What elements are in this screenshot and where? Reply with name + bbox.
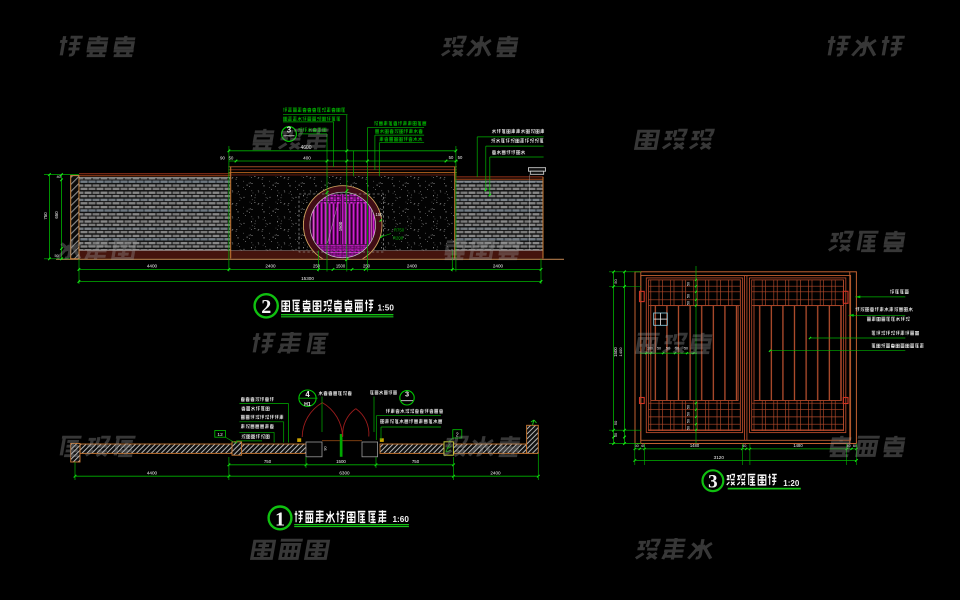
svg-text:1:50: 1:50 [378, 304, 395, 313]
svg-text:1: 1 [275, 508, 285, 530]
svg-text:R200: R200 [393, 236, 404, 241]
svg-text:50: 50 [687, 294, 691, 298]
svg-text:H1: H1 [304, 402, 311, 408]
svg-text:2400: 2400 [490, 470, 501, 475]
svg-text:50: 50 [229, 155, 234, 160]
svg-text:50: 50 [687, 405, 691, 409]
svg-text:4: 4 [305, 390, 310, 399]
svg-text:15300: 15300 [301, 276, 314, 281]
svg-text:50: 50 [687, 412, 691, 416]
svg-text:750: 750 [43, 212, 48, 220]
svg-text:50: 50 [613, 279, 618, 284]
svg-text:750: 750 [412, 459, 420, 464]
svg-text:50: 50 [687, 419, 691, 423]
svg-text:6300: 6300 [339, 470, 350, 475]
svg-text:1400: 1400 [618, 347, 623, 357]
svg-text:400: 400 [303, 156, 311, 161]
svg-text:1:20: 1:20 [783, 479, 800, 488]
svg-text:4400: 4400 [147, 470, 158, 475]
svg-text:1500: 1500 [336, 459, 346, 464]
svg-text:1500: 1500 [338, 221, 343, 231]
svg-text:250: 250 [313, 264, 321, 269]
svg-text:50: 50 [449, 155, 454, 160]
svg-text:12: 12 [217, 432, 223, 438]
svg-text:1:60: 1:60 [393, 515, 410, 524]
svg-text:2400: 2400 [407, 264, 418, 269]
svg-text:2400: 2400 [493, 264, 504, 269]
svg-text:50: 50 [657, 347, 661, 351]
svg-text:50: 50 [684, 347, 688, 351]
svg-text:50: 50 [614, 433, 618, 437]
svg-text:650: 650 [54, 211, 59, 219]
svg-text:R750: R750 [394, 228, 405, 233]
svg-text:90: 90 [324, 446, 328, 450]
svg-text:250: 250 [363, 264, 371, 269]
svg-text:40: 40 [742, 444, 746, 448]
svg-text:50: 50 [687, 282, 691, 286]
svg-text:90: 90 [220, 155, 225, 160]
svg-text:3120: 3120 [714, 455, 725, 460]
svg-text:2: 2 [261, 296, 271, 318]
svg-text:150: 150 [376, 212, 384, 217]
svg-text:1480: 1480 [690, 443, 700, 448]
svg-text:60: 60 [634, 444, 638, 448]
svg-text:1500: 1500 [336, 264, 346, 269]
svg-text:50: 50 [613, 420, 618, 425]
svg-text:750: 750 [264, 459, 272, 464]
svg-text:50: 50 [687, 426, 691, 430]
svg-text:50: 50 [687, 301, 691, 305]
svg-text:3: 3 [708, 472, 718, 493]
svg-text:3: 3 [405, 390, 409, 399]
svg-text:50: 50 [458, 155, 463, 160]
svg-text:2400: 2400 [265, 264, 276, 269]
svg-text:1480: 1480 [793, 443, 803, 448]
svg-text:4400: 4400 [147, 264, 158, 269]
